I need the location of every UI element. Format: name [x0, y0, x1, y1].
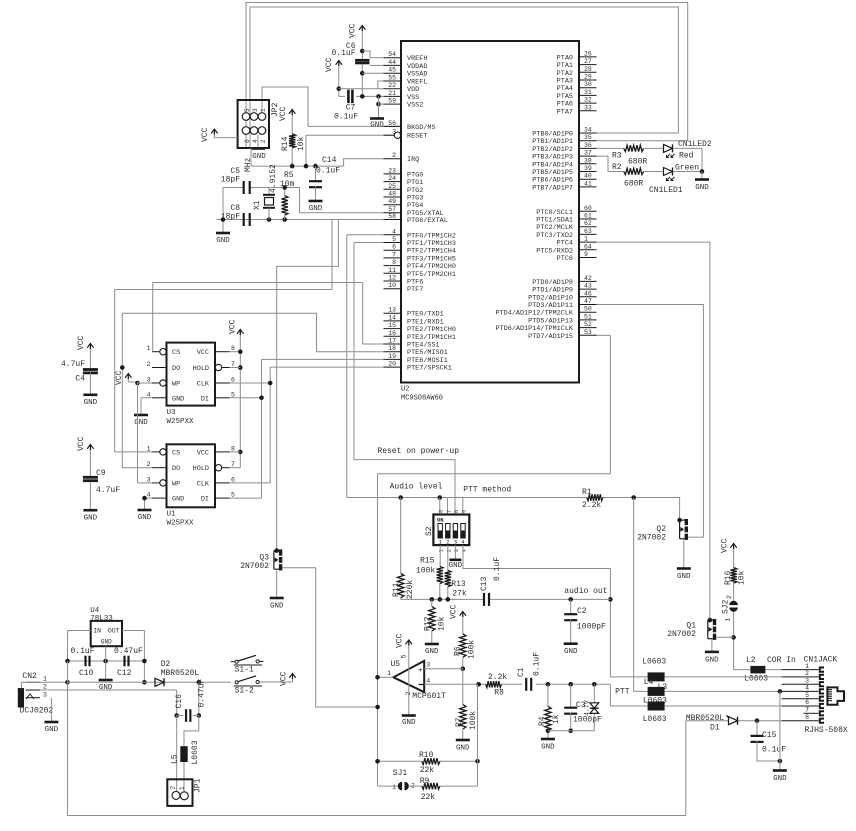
svg-text:MCP601T: MCP601T [412, 692, 446, 701]
svg-text:VCC: VCC [115, 370, 124, 385]
svg-text:0.1uF: 0.1uF [71, 647, 95, 656]
svg-text:8: 8 [231, 345, 235, 352]
svg-text:GND: GND [216, 237, 230, 245]
svg-text:6: 6 [231, 476, 235, 483]
svg-text:VDDAD: VDDAD [407, 63, 427, 71]
svg-text:0.47uF: 0.47uF [198, 678, 207, 707]
svg-text:3: 3 [147, 377, 151, 384]
svg-text:0.1uF: 0.1uF [762, 746, 786, 755]
svg-text:L0603: L0603 [643, 715, 667, 724]
svg-text:RJHS-508X: RJHS-508X [805, 726, 848, 735]
svg-text:3: 3 [454, 539, 457, 546]
svg-text:WP: WP [172, 381, 180, 389]
svg-text:VCC: VCC [280, 671, 289, 686]
svg-text:GND: GND [705, 657, 719, 665]
svg-text:CN2: CN2 [22, 672, 37, 681]
svg-text:C10: C10 [79, 669, 94, 678]
svg-text:2: 2 [170, 786, 177, 790]
svg-text:680R: 680R [624, 180, 643, 189]
svg-text:GND: GND [677, 573, 691, 581]
svg-text:18pF: 18pF [221, 213, 240, 222]
svg-text:VCC: VCC [325, 57, 334, 72]
svg-text:1: 1 [584, 236, 588, 243]
svg-text:10: 10 [388, 282, 396, 289]
svg-text:2: 2 [805, 670, 809, 677]
svg-text:GND: GND [564, 648, 578, 656]
svg-text:GND: GND [99, 684, 113, 692]
svg-text:62: 62 [584, 220, 592, 227]
svg-text:6: 6 [392, 244, 396, 251]
svg-text:MC9S08AW60: MC9S08AW60 [401, 395, 443, 403]
svg-text:VCC: VCC [721, 538, 730, 553]
svg-text:5: 5 [231, 391, 235, 398]
svg-text:10k: 10k [738, 570, 747, 585]
svg-text:3: 3 [43, 692, 47, 699]
svg-text:GND: GND [309, 205, 323, 213]
svg-text:R15: R15 [420, 557, 435, 566]
svg-text:1: 1 [260, 108, 267, 112]
svg-text:15: 15 [388, 322, 396, 329]
svg-text:L5: L5 [171, 754, 180, 764]
svg-text:27: 27 [584, 58, 592, 65]
svg-text:3: 3 [426, 662, 430, 669]
svg-text:22k: 22k [420, 766, 435, 775]
svg-text:2N7002: 2N7002 [667, 630, 696, 639]
svg-text:R11: R11 [392, 582, 401, 597]
svg-text:L0603: L0603 [744, 675, 768, 684]
svg-text:6: 6 [453, 510, 460, 513]
svg-text:GND: GND [84, 399, 98, 407]
svg-text:GND: GND [695, 184, 709, 192]
svg-text:DCJ0202: DCJ0202 [20, 707, 54, 716]
svg-text:4.9152: 4.9152 [269, 164, 278, 193]
svg-text:W25PXX: W25PXX [167, 520, 195, 528]
svg-text:4: 4 [147, 492, 151, 499]
svg-text:Green: Green [675, 164, 699, 173]
svg-text:C12: C12 [117, 669, 132, 678]
svg-text:R13: R13 [451, 580, 466, 589]
svg-text:22k: 22k [421, 793, 436, 802]
svg-text:GND: GND [84, 515, 98, 523]
svg-text:0.1uF: 0.1uF [334, 113, 358, 122]
svg-text:Audio level: Audio level [390, 483, 443, 492]
svg-text:5: 5 [231, 492, 235, 499]
svg-text:C4: C4 [75, 375, 85, 384]
svg-text:53: 53 [584, 329, 592, 336]
svg-text:C7: C7 [346, 103, 356, 112]
svg-text:18: 18 [388, 345, 396, 352]
svg-text:18pF: 18pF [221, 176, 240, 185]
svg-text:GND: GND [402, 719, 416, 727]
svg-text:R2: R2 [612, 163, 622, 172]
svg-text:R12: R12 [424, 616, 433, 631]
svg-text:60: 60 [584, 205, 592, 212]
svg-text:C9: C9 [96, 469, 106, 478]
svg-text:R7: R7 [455, 717, 464, 727]
svg-text:HOLD: HOLD [193, 365, 209, 373]
svg-text:8: 8 [392, 259, 396, 266]
svg-text:56: 56 [388, 120, 396, 127]
svg-text:GND: GND [138, 514, 152, 522]
svg-text:10m: 10m [280, 180, 295, 189]
svg-text:10k: 10k [297, 136, 306, 151]
svg-text:R1: R1 [582, 488, 592, 497]
svg-text:COR In: COR In [767, 656, 796, 665]
svg-text:26: 26 [584, 50, 592, 57]
svg-text:1: 1 [725, 618, 732, 622]
svg-text:33: 33 [584, 104, 592, 111]
svg-text:IRQ: IRQ [407, 156, 419, 164]
svg-text:L2: L2 [746, 656, 756, 665]
svg-text:20: 20 [388, 361, 396, 368]
svg-text:R8: R8 [494, 689, 504, 698]
svg-text:R3: R3 [612, 152, 622, 161]
svg-text:CLK: CLK [197, 480, 210, 488]
svg-text:U3: U3 [167, 409, 177, 417]
svg-text:D2: D2 [161, 660, 171, 669]
svg-text:28: 28 [584, 66, 592, 73]
svg-text:1k: 1k [552, 714, 561, 724]
svg-text:64: 64 [584, 243, 592, 250]
svg-text:R5: R5 [284, 171, 294, 180]
svg-text:3: 3 [392, 129, 396, 136]
svg-text:+: + [418, 667, 423, 675]
svg-text:25: 25 [388, 183, 396, 190]
svg-text:VCC: VCC [349, 23, 358, 38]
svg-text:PTB7/AD1P7: PTB7/AD1P7 [532, 184, 573, 192]
svg-text:61: 61 [584, 213, 592, 220]
svg-text:MBR0520L: MBR0520L [161, 669, 200, 678]
svg-text:8: 8 [231, 445, 235, 452]
svg-text:34: 34 [584, 127, 592, 134]
svg-text:5: 5 [401, 655, 408, 659]
svg-text:4: 4 [426, 677, 430, 684]
svg-text:C13: C13 [480, 576, 489, 591]
svg-text:31: 31 [584, 89, 592, 96]
svg-text:48: 48 [388, 191, 396, 198]
svg-text:DO: DO [172, 365, 180, 373]
svg-text:49: 49 [388, 198, 396, 205]
svg-text:19: 19 [388, 353, 396, 360]
svg-text:PTC6: PTC6 [557, 255, 573, 263]
svg-text:PTT: PTT [615, 688, 630, 697]
svg-text:U1: U1 [167, 511, 177, 519]
svg-text:2: 2 [726, 595, 733, 599]
svg-text:U4: U4 [90, 607, 100, 615]
svg-text:OUT: OUT [108, 628, 120, 635]
svg-text:6: 6 [805, 699, 809, 706]
svg-text:SJ1: SJ1 [393, 769, 408, 778]
svg-text:5: 5 [461, 510, 468, 513]
svg-text:7: 7 [392, 251, 396, 258]
svg-text:13: 13 [388, 307, 396, 314]
svg-text:C1: C1 [517, 667, 526, 677]
svg-text:43: 43 [584, 283, 592, 290]
svg-text:6: 6 [231, 377, 235, 384]
svg-text:RESET: RESET [407, 133, 427, 141]
svg-text:1: 1 [387, 670, 391, 677]
svg-text:63: 63 [584, 228, 592, 235]
svg-text:CLK: CLK [197, 381, 210, 389]
svg-text:CS: CS [172, 349, 180, 357]
svg-text:100k: 100k [468, 640, 477, 659]
svg-text:23: 23 [388, 167, 396, 174]
svg-text:78L33: 78L33 [90, 615, 113, 623]
svg-text:32: 32 [584, 97, 592, 104]
svg-text:PTT method: PTT method [463, 486, 511, 495]
svg-text:PTF7: PTF7 [407, 286, 423, 294]
svg-text:VCC: VCC [197, 449, 209, 457]
svg-text:DO: DO [172, 465, 180, 473]
svg-text:30: 30 [584, 81, 592, 88]
svg-text:U2: U2 [401, 386, 409, 394]
svg-text:PTE7/SPSCK1: PTE7/SPSCK1 [407, 365, 452, 373]
svg-text:24: 24 [388, 175, 396, 182]
svg-text:0.1uF: 0.1uF [331, 49, 355, 58]
svg-text:W25PXX: W25PXX [167, 418, 195, 426]
svg-text:17: 17 [388, 338, 396, 345]
svg-text:VCC: VCC [396, 633, 405, 648]
svg-text:1: 1 [805, 663, 809, 670]
svg-text:4.7V: 4.7V [584, 700, 591, 716]
svg-text:L4: L4 [644, 678, 654, 687]
svg-text:R10: R10 [419, 751, 434, 760]
svg-text:S1-1: S1-1 [235, 665, 254, 674]
svg-text:L0603: L0603 [642, 658, 666, 667]
svg-text:R16: R16 [724, 570, 733, 585]
svg-text:R14: R14 [281, 136, 290, 151]
svg-text:8: 8 [805, 714, 809, 721]
svg-text:VSS2: VSS2 [407, 102, 423, 110]
svg-text:46: 46 [584, 290, 592, 297]
svg-text:59: 59 [388, 98, 396, 105]
svg-text:12: 12 [388, 275, 396, 282]
svg-text:38: 38 [584, 157, 592, 164]
svg-text:7: 7 [805, 707, 809, 714]
svg-text:Reset on power-up: Reset on power-up [377, 447, 459, 456]
svg-text:2: 2 [445, 549, 452, 552]
svg-text:U5: U5 [391, 660, 401, 669]
svg-text:58: 58 [388, 213, 396, 220]
svg-text:ON: ON [437, 517, 444, 524]
svg-text:52: 52 [584, 321, 592, 328]
svg-text:0.1uF: 0.1uF [533, 652, 542, 676]
svg-text:MHz: MHz [244, 157, 253, 172]
svg-text:1: 1 [392, 784, 396, 791]
svg-text:CN1LED2: CN1LED2 [678, 140, 712, 149]
svg-text:14: 14 [388, 314, 396, 321]
svg-text:audio out: audio out [564, 587, 607, 596]
svg-text:VCC: VCC [77, 436, 86, 451]
svg-text:6: 6 [244, 139, 251, 143]
svg-text:PTD7/AD1P15: PTD7/AD1P15 [528, 333, 573, 341]
svg-text:5: 5 [392, 236, 396, 243]
svg-text:51: 51 [584, 313, 592, 320]
svg-text:CS: CS [172, 449, 180, 457]
svg-text:3: 3 [453, 549, 460, 552]
svg-text:GND: GND [270, 603, 284, 611]
svg-text:44: 44 [388, 59, 396, 66]
svg-text:GND: GND [541, 744, 555, 752]
svg-text:C16: C16 [175, 694, 184, 709]
svg-text:21: 21 [388, 90, 396, 97]
svg-text:VSSAD: VSSAD [407, 71, 427, 79]
svg-text:X1: X1 [253, 200, 262, 210]
svg-text:41: 41 [584, 180, 592, 187]
svg-text:2N7002: 2N7002 [240, 562, 269, 571]
svg-text:4: 4 [805, 685, 809, 692]
svg-text:GND: GND [425, 648, 439, 656]
svg-text:1: 1 [147, 345, 151, 352]
svg-text:S1-2: S1-2 [235, 686, 254, 695]
svg-text:HOLD: HOLD [193, 465, 209, 473]
svg-text:680R: 680R [628, 158, 647, 167]
svg-text:7: 7 [231, 361, 235, 368]
svg-text:GND: GND [101, 639, 112, 646]
svg-text:4: 4 [147, 391, 151, 398]
svg-text:2N7002: 2N7002 [637, 534, 666, 543]
svg-text:100k: 100k [469, 711, 478, 730]
svg-text:DI: DI [201, 395, 209, 403]
svg-text:IN: IN [93, 628, 101, 635]
svg-text:37: 37 [584, 150, 592, 157]
svg-text:100k: 100k [416, 567, 435, 576]
svg-text:2: 2 [147, 361, 151, 368]
svg-text:7: 7 [231, 461, 235, 468]
svg-text:L0603: L0603 [191, 740, 200, 764]
svg-text:PTA7: PTA7 [557, 108, 573, 116]
svg-text:BKGD/MS: BKGD/MS [407, 124, 436, 132]
svg-text:220k: 220k [406, 580, 415, 599]
svg-text:C2: C2 [577, 607, 587, 616]
svg-text:1: 1 [43, 676, 47, 683]
svg-text:2: 2 [446, 539, 449, 546]
svg-text:VCC: VCC [77, 335, 86, 350]
svg-text:2: 2 [43, 684, 47, 691]
svg-text:4: 4 [392, 228, 396, 235]
svg-text:PTG6/EXTAL: PTG6/EXTAL [407, 217, 448, 225]
svg-text:7: 7 [445, 510, 452, 513]
svg-text:36: 36 [584, 142, 592, 149]
svg-text:PTG4: PTG4 [407, 202, 423, 210]
svg-text:VCC: VCC [197, 349, 209, 357]
svg-text:42: 42 [584, 275, 592, 282]
svg-text:3: 3 [805, 677, 809, 684]
svg-text:29: 29 [584, 74, 592, 81]
svg-text:10k: 10k [438, 616, 447, 631]
svg-text:MBR0520L: MBR0520L [686, 714, 725, 723]
svg-text:Red: Red [679, 152, 694, 161]
svg-text:CN1LED1: CN1LED1 [649, 186, 683, 195]
svg-text:4.7uF: 4.7uF [96, 486, 120, 495]
svg-text:GND: GND [134, 419, 148, 427]
svg-text:50: 50 [584, 306, 592, 313]
svg-text:2.2k: 2.2k [488, 673, 507, 682]
svg-text:GND: GND [456, 745, 470, 753]
svg-text:9: 9 [584, 251, 588, 258]
svg-text:2: 2 [392, 152, 396, 159]
svg-text:5: 5 [805, 692, 809, 699]
svg-text:VCC: VCC [279, 106, 288, 121]
svg-text:55: 55 [388, 75, 396, 82]
svg-text:D1: D1 [710, 724, 720, 733]
svg-text:45: 45 [388, 67, 396, 74]
svg-text:4.7uF: 4.7uF [61, 360, 85, 369]
svg-text:0.1uF: 0.1uF [493, 557, 502, 581]
svg-text:5: 5 [244, 108, 251, 112]
svg-text:GND: GND [370, 122, 384, 130]
svg-text:54: 54 [388, 51, 396, 58]
svg-text:VCC: VCC [450, 604, 459, 619]
svg-text:GND: GND [172, 395, 184, 403]
svg-text:2.2k: 2.2k [582, 501, 601, 510]
svg-text:GND: GND [172, 496, 184, 504]
svg-text:C15: C15 [762, 731, 777, 740]
svg-text:DI: DI [201, 496, 209, 504]
svg-text:16: 16 [388, 330, 396, 337]
svg-text:VCC: VCC [201, 127, 210, 142]
svg-text:WP: WP [172, 480, 180, 488]
svg-text:0.47uF: 0.47uF [114, 647, 143, 656]
svg-text:JP1: JP1 [194, 778, 203, 793]
svg-text:1: 1 [179, 786, 186, 790]
svg-text:R9: R9 [420, 777, 430, 786]
svg-text:39: 39 [584, 165, 592, 172]
svg-text:R4: R4 [538, 716, 547, 726]
svg-text:47: 47 [584, 298, 592, 305]
svg-text:2: 2 [260, 139, 267, 143]
svg-text:GND: GND [773, 775, 787, 783]
svg-text:3: 3 [147, 476, 151, 483]
svg-text:0.1uF: 0.1uF [316, 167, 340, 176]
svg-text:35: 35 [584, 134, 592, 141]
svg-text:1: 1 [147, 445, 151, 452]
svg-text:2: 2 [147, 461, 151, 468]
svg-text:1000pF: 1000pF [577, 623, 606, 632]
svg-text:SJ2: SJ2 [722, 599, 731, 614]
svg-text:C14: C14 [322, 156, 337, 165]
svg-text:3: 3 [252, 108, 259, 112]
svg-text:R6: R6 [454, 646, 463, 656]
svg-text:GND: GND [449, 562, 463, 570]
svg-text:40: 40 [584, 173, 592, 180]
svg-text:GND: GND [45, 726, 59, 734]
svg-text:VCC: VCC [229, 319, 238, 334]
svg-text:S2: S2 [425, 526, 434, 536]
svg-text:8: 8 [438, 510, 445, 513]
svg-text:27k: 27k [452, 590, 467, 599]
svg-text:11: 11 [388, 267, 396, 274]
svg-text:GND: GND [252, 153, 266, 161]
svg-text:22: 22 [388, 82, 396, 89]
